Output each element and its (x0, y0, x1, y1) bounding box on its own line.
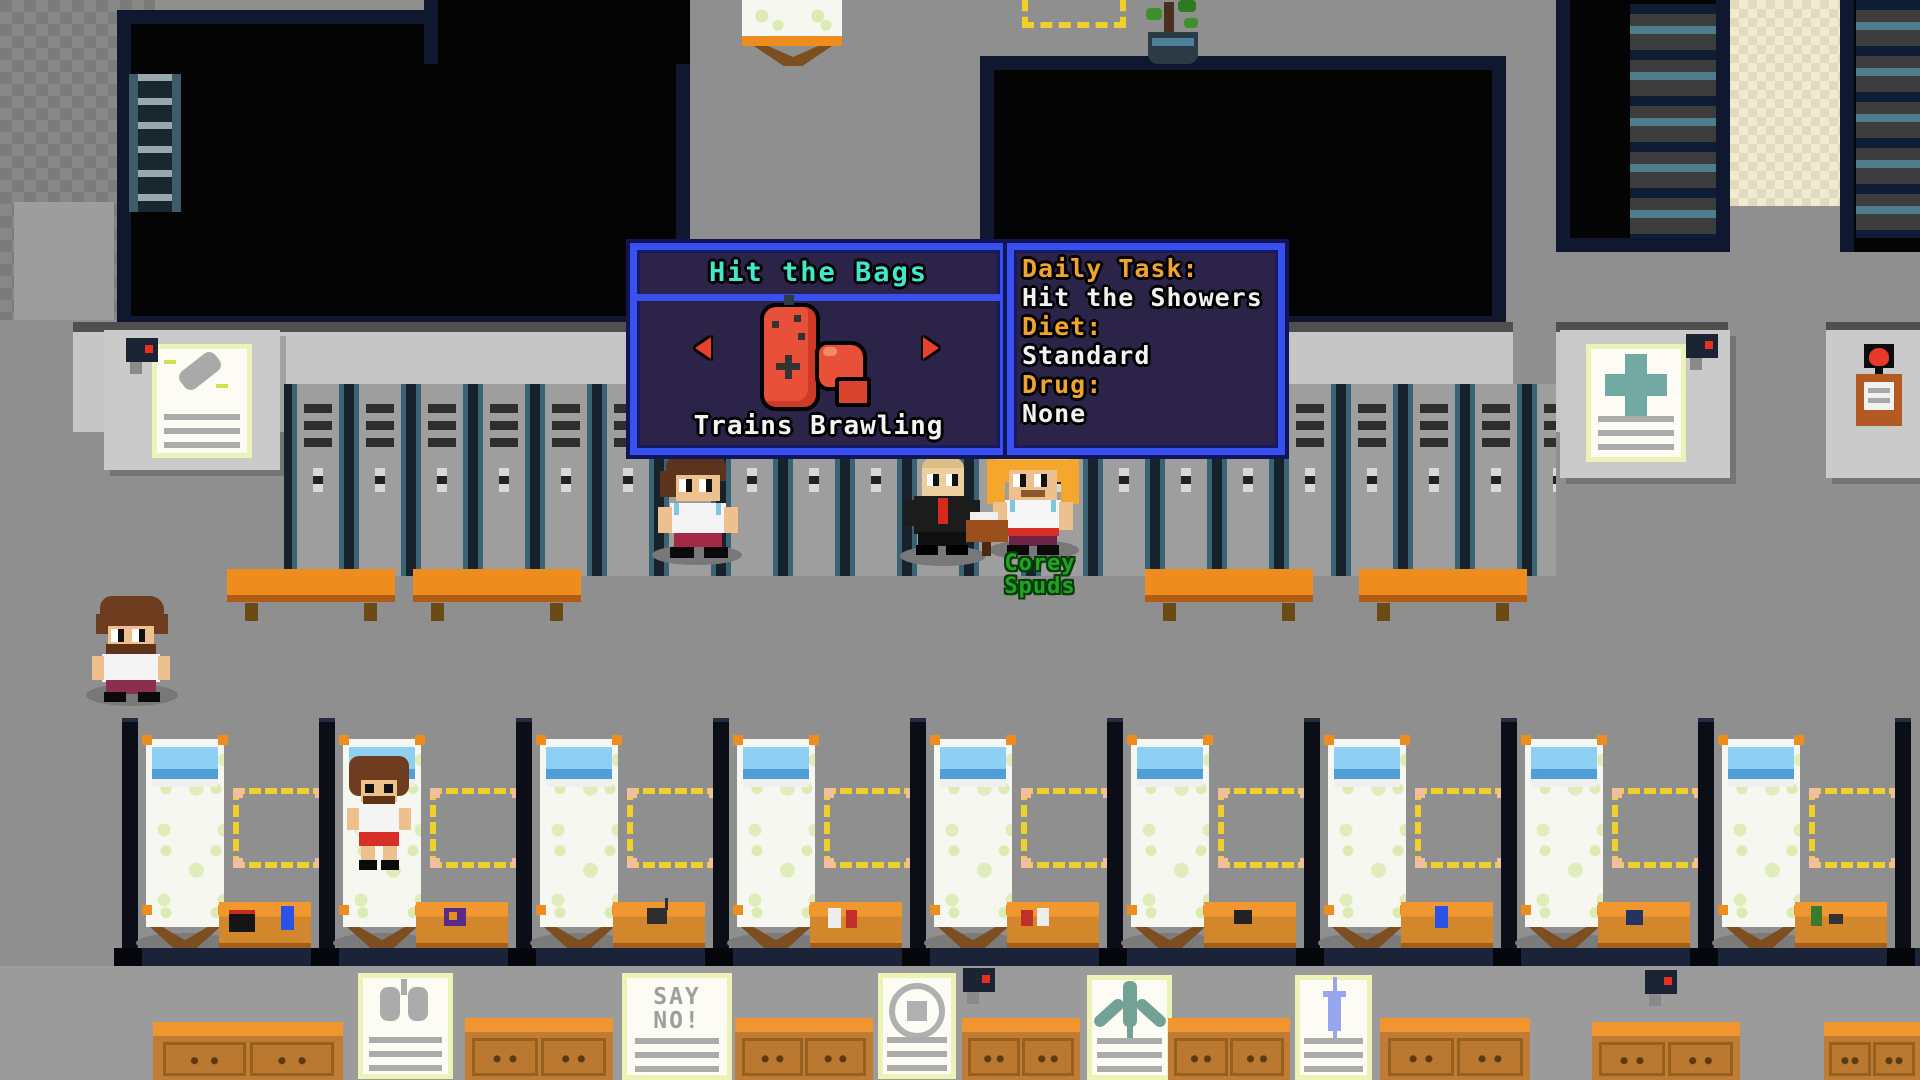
security-camera (963, 968, 995, 992)
partition-wall (516, 718, 532, 950)
dresser (962, 1018, 1080, 1080)
arm (658, 507, 672, 533)
bed-knob (415, 735, 425, 745)
nightstand (1007, 902, 1099, 950)
say-no-text: SAY NO! (632, 985, 722, 1033)
bed-pillow (546, 747, 612, 787)
locker (540, 384, 592, 576)
arm (92, 656, 104, 680)
poster-text-lines (1598, 416, 1674, 454)
sparkle-icon (216, 384, 228, 388)
arrow-right-icon[interactable] (923, 337, 939, 359)
bed-knob (930, 735, 940, 745)
arm (399, 808, 411, 830)
bed-cubicle (1304, 718, 1501, 958)
status-label-daily-task: Daily Task: (1022, 254, 1263, 283)
status-value-drug: None (1022, 399, 1263, 428)
nightstand (1795, 902, 1887, 950)
nightstand-item (828, 908, 841, 928)
bed-cubicle (1501, 718, 1698, 958)
training-subtitle: Trains Brawling (637, 411, 1000, 441)
bed-pillow (743, 747, 809, 787)
nightstand (1401, 902, 1493, 950)
eye (679, 479, 692, 492)
bed-pillow (1728, 747, 1794, 787)
status-value-daily-task: Hit the Showers (1022, 283, 1263, 312)
lungs-poster (358, 973, 453, 1079)
item-slot[interactable] (824, 788, 916, 868)
nightstand-item (229, 910, 255, 932)
alarm-label-lines (1868, 388, 1890, 393)
plant-leaves (1184, 18, 1198, 28)
potted-plant (1140, 0, 1206, 66)
bed[interactable] (1127, 735, 1213, 947)
bed-cubicle (516, 718, 713, 958)
plant-leaves (1178, 0, 1196, 12)
stand-top (966, 520, 1008, 542)
bed-knob (1324, 735, 1334, 745)
ladder (129, 74, 181, 212)
bed-knob (1718, 905, 1728, 915)
bed-foot-rail (742, 36, 842, 46)
boxing-glove-icon (815, 341, 875, 403)
lungs-icon (401, 979, 407, 995)
npc-sleeping[interactable] (347, 756, 413, 874)
bed-knob (1127, 735, 1137, 745)
bench-leg (1163, 603, 1176, 621)
dresser (1592, 1022, 1740, 1080)
hygiene-poster (152, 344, 252, 458)
anti-drug-leaf-poster (1087, 975, 1172, 1080)
bed-pillow (940, 747, 1006, 787)
security-camera (1686, 334, 1718, 358)
bag-dot (794, 315, 801, 322)
bed-pillow (1137, 747, 1203, 787)
dresser (465, 1018, 613, 1080)
tie (938, 498, 948, 524)
shoe (946, 545, 968, 555)
npc-bearded[interactable] (82, 596, 182, 708)
shelf-rack (1630, 4, 1716, 238)
target-icon (907, 1001, 927, 1021)
bench-seat (1145, 569, 1313, 602)
shoe (381, 860, 399, 870)
eye (1013, 474, 1026, 487)
nightstand (810, 902, 902, 950)
bed-knob (1127, 905, 1137, 915)
eye (1034, 474, 1047, 487)
partition-wall (319, 718, 335, 950)
leaf-icon (1127, 1025, 1133, 1039)
locker (1346, 384, 1398, 576)
nightstand-item (1037, 908, 1049, 926)
bench (1359, 569, 1527, 627)
nightstand-item (647, 908, 667, 924)
partition-wall (122, 718, 138, 950)
bed-knob (809, 735, 819, 745)
bed-knob (733, 735, 743, 745)
bed-foot-legs (754, 46, 832, 66)
glove-highlight (823, 347, 837, 356)
hair (660, 471, 676, 497)
shoe (104, 692, 126, 702)
nightstand-item (1435, 906, 1448, 928)
arm (904, 500, 916, 526)
game-screen: SAY NO! (0, 0, 1920, 1080)
eye (132, 629, 145, 642)
bed-knob (218, 735, 228, 745)
mustache (363, 796, 395, 804)
nightstand-item (1626, 910, 1643, 925)
nightstand (1598, 902, 1690, 950)
bag-dot (798, 333, 805, 340)
health-poster (1586, 344, 1686, 462)
nightstand (219, 902, 311, 950)
shadow (652, 545, 742, 565)
bed-knob (1400, 735, 1410, 745)
bed-knob (339, 735, 349, 745)
bench-leg (364, 603, 377, 621)
shoe (138, 692, 160, 702)
bed-knob (339, 905, 349, 915)
poster-text-lines (887, 1037, 946, 1071)
bench-leg (245, 603, 258, 621)
dark-room-left-extension (424, 0, 690, 64)
say-no-poster: SAY NO! (622, 973, 732, 1080)
alarm-bell-icon (1869, 348, 1889, 366)
nightstand (416, 902, 508, 950)
poster-text-lines (635, 1038, 719, 1072)
status-label-diet: Diet: (1022, 312, 1263, 341)
eye (946, 474, 958, 486)
training-panel-title: Hit the Bags (637, 250, 1000, 301)
dresser (735, 1018, 873, 1080)
arm (1059, 502, 1073, 530)
eye (111, 629, 124, 642)
bench-leg (1282, 603, 1295, 621)
bed-cubicle (1698, 718, 1895, 958)
status-value-diet: Standard (1022, 341, 1263, 370)
nightstand-item (1811, 906, 1822, 926)
dresser (1824, 1022, 1920, 1080)
tank-strap (1010, 500, 1015, 512)
leaf-icon (1092, 996, 1127, 1029)
item-slot[interactable] (1612, 788, 1704, 868)
bed[interactable] (930, 735, 1016, 947)
bench-leg (1496, 603, 1509, 621)
bed-knob (1521, 735, 1531, 745)
nightstand-item (665, 898, 668, 910)
medical-cross-icon (1605, 374, 1667, 396)
alarm-label (1864, 382, 1894, 410)
eye (365, 784, 374, 793)
leaf-icon (1134, 996, 1169, 1029)
bench-leg (431, 603, 444, 621)
tank-strap (674, 503, 679, 515)
bed-pillow (152, 747, 218, 787)
locker (1470, 384, 1522, 576)
nightstand-item (449, 912, 457, 920)
arrow-left-icon[interactable] (695, 337, 711, 359)
bed[interactable] (733, 735, 819, 947)
bench-seat (227, 569, 395, 602)
arm (347, 808, 359, 830)
locker (292, 384, 344, 576)
bed-knob (142, 905, 152, 915)
syringe-icon (1328, 997, 1341, 1031)
dresser (1380, 1018, 1530, 1080)
bed-cubicle (319, 718, 516, 958)
item-slot[interactable] (1218, 788, 1310, 868)
bench-leg (550, 603, 563, 621)
bench (227, 569, 395, 627)
nightstand (1204, 902, 1296, 950)
bed-knob (536, 735, 546, 745)
eye (927, 474, 939, 486)
locker (1532, 384, 1556, 576)
bed-knob (1203, 735, 1213, 745)
pants (674, 533, 722, 547)
bed[interactable] (142, 735, 228, 947)
locker (1284, 384, 1336, 576)
bag-cross (785, 355, 792, 379)
pants (918, 532, 966, 546)
glove-cuff (835, 377, 871, 407)
poster-text-lines (1304, 1038, 1363, 1072)
item-slot-partial[interactable] (1022, 0, 1126, 28)
floor-mat (14, 202, 114, 320)
hair (1061, 474, 1079, 504)
cubicle-base-wall (114, 948, 1920, 968)
bed[interactable] (1521, 735, 1607, 947)
bench (413, 569, 581, 627)
nightstand-item (1829, 914, 1843, 924)
shoe (916, 545, 938, 555)
bed-cubicle (713, 718, 910, 958)
bed[interactable] (1324, 735, 1410, 947)
item-slot[interactable] (1415, 788, 1507, 868)
bench (1145, 569, 1313, 627)
shelf-rack (1856, 0, 1920, 238)
bed-knob (1324, 905, 1334, 915)
arm (724, 507, 738, 533)
npc-name-label: Corey Spuds (980, 552, 1100, 598)
training-panel: Hit the Bags Trains Brawling (630, 243, 1007, 455)
security-camera (1645, 970, 1677, 994)
bed[interactable] (536, 735, 622, 947)
syringe-poster (1295, 975, 1372, 1080)
nightstand-item (1234, 910, 1252, 924)
item-slot[interactable] (233, 788, 325, 868)
bed-knob (1794, 735, 1804, 745)
bed-cubicle (910, 718, 1107, 958)
locker (1408, 384, 1460, 576)
partition-wall (1304, 718, 1320, 950)
bed-knob (1521, 905, 1531, 915)
tank-top (357, 806, 401, 834)
lungs-icon (380, 987, 400, 1021)
nightstand-item (846, 910, 857, 928)
shorts (359, 832, 399, 846)
belt (1007, 528, 1059, 536)
bench-seat (1359, 569, 1527, 602)
bed-knob (733, 905, 743, 915)
shoe (704, 547, 728, 558)
fire-alarm (1856, 344, 1902, 428)
shoe (670, 547, 694, 558)
locker (478, 384, 530, 576)
bed-pillow (1334, 747, 1400, 787)
bed-knob (536, 905, 546, 915)
bed-knob (930, 905, 940, 915)
bed-knob (1718, 735, 1728, 745)
status-label-drug: Drug: (1022, 370, 1263, 399)
mouth (1021, 490, 1045, 497)
npc-fighter[interactable] (652, 455, 742, 567)
bed-knob (612, 735, 622, 745)
bed-knob (1006, 735, 1016, 745)
training-panel-body: Trains Brawling (637, 301, 1000, 448)
bed-knob (142, 735, 152, 745)
eye (384, 784, 393, 793)
item-slot[interactable] (430, 788, 522, 868)
dresser (1168, 1018, 1290, 1080)
item-slot[interactable] (1021, 788, 1113, 868)
nightstand-item (1021, 910, 1033, 926)
tank-strap (716, 503, 721, 515)
partition-wall (1107, 718, 1123, 950)
item-slot[interactable] (627, 788, 719, 868)
partition-wall (1501, 718, 1517, 950)
syringe-icon (1323, 991, 1346, 997)
locker (354, 384, 406, 576)
poster-text-lines (1097, 1038, 1162, 1072)
item-slot[interactable] (1809, 788, 1901, 868)
bed-pillow (1531, 747, 1597, 787)
nightstand-item (281, 906, 294, 930)
plant-trunk (1164, 2, 1174, 36)
arm (158, 656, 170, 680)
hair (987, 474, 1005, 504)
poster-text-lines (369, 1037, 441, 1071)
dresser (153, 1022, 343, 1080)
bag-hook (784, 295, 794, 305)
bench-seat (413, 569, 581, 602)
plant-pot (1148, 32, 1198, 64)
partition-wall (713, 718, 729, 950)
nightstand (613, 902, 705, 950)
bed-cubicle (122, 718, 319, 958)
locker (416, 384, 468, 576)
status-panel: Daily Task: Hit the Showers Diet: Standa… (1007, 243, 1285, 455)
eye (699, 479, 712, 492)
partition-wall (1895, 718, 1911, 950)
shoe (359, 860, 377, 870)
bed-cubicle (1107, 718, 1304, 958)
tiled-corridor-topright (1730, 0, 1840, 206)
bag-dot (772, 321, 779, 328)
security-camera (126, 338, 158, 362)
plant-leaves (1146, 8, 1162, 20)
lungs-icon (408, 987, 428, 1021)
partition-wall (910, 718, 926, 950)
target-poster (878, 973, 956, 1079)
poster-text-lines (164, 414, 240, 450)
tank-strap (1051, 500, 1056, 512)
bed[interactable] (1718, 735, 1804, 947)
plant-pot-stripe (1152, 38, 1194, 46)
bench-leg (1377, 603, 1390, 621)
syringe-icon (1333, 977, 1337, 991)
punching-bag-icon (760, 303, 820, 411)
bed-knob (1597, 735, 1607, 745)
tank-top (102, 654, 160, 682)
partition-wall (1698, 718, 1714, 950)
